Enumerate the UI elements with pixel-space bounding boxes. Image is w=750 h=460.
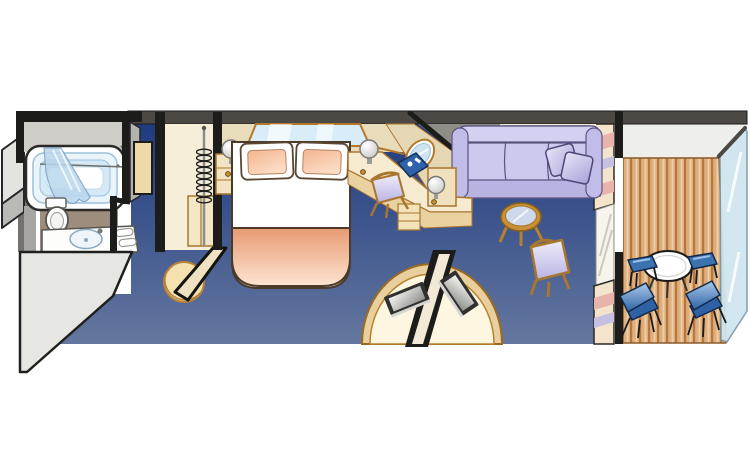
entry-door-jamb xyxy=(134,142,152,194)
towel-roll-2 xyxy=(119,238,137,247)
desk-drawers xyxy=(398,204,420,230)
towel-roll-1 xyxy=(116,228,134,237)
sofa-pillow-2 xyxy=(560,151,593,184)
folder-logo-dot xyxy=(408,162,413,167)
armchair-leg xyxy=(548,282,549,297)
sink-vanity xyxy=(42,226,138,252)
door-frame-opening xyxy=(615,158,623,252)
pillow-left xyxy=(240,142,293,180)
stateroom-floorplan xyxy=(0,0,750,460)
cabinet-knob xyxy=(432,200,437,205)
armchair-back xyxy=(531,240,569,280)
nightstand-knob xyxy=(226,172,231,177)
pillow-right xyxy=(295,142,348,180)
bathroom-wall-step xyxy=(110,199,130,202)
stool-leg xyxy=(636,273,637,287)
curtain-bottom xyxy=(594,280,614,344)
closet-wall-left xyxy=(155,112,165,252)
sofa-back-band xyxy=(458,126,600,142)
toilet-seat xyxy=(51,213,64,230)
floorplan-canvas xyxy=(0,0,750,460)
railing-glass-panel xyxy=(720,129,747,342)
sink-drain xyxy=(84,238,88,242)
rod-knob xyxy=(202,126,206,130)
lamp-globe xyxy=(360,140,378,158)
hull-stub xyxy=(24,206,36,252)
pillow-inner xyxy=(248,149,287,174)
lamp-globe xyxy=(428,177,445,194)
blanket xyxy=(232,228,350,286)
console-knob xyxy=(361,170,366,175)
bathroom-top-wall xyxy=(16,111,142,122)
toilet xyxy=(46,198,68,233)
glass-railing xyxy=(719,128,747,342)
curtain-rod-end xyxy=(116,164,119,167)
patio-table-leg xyxy=(667,281,668,298)
stool-leg xyxy=(696,270,697,284)
bathroom-wall-right-upper xyxy=(122,120,130,204)
pillow-inner xyxy=(303,149,342,174)
sofa xyxy=(452,126,602,198)
bathroom-left-wall xyxy=(16,111,24,163)
bathroom-wall-right-lower xyxy=(110,196,117,252)
chair-leg xyxy=(703,318,704,337)
bedroom-furniture xyxy=(216,140,350,288)
faucet xyxy=(98,229,103,234)
